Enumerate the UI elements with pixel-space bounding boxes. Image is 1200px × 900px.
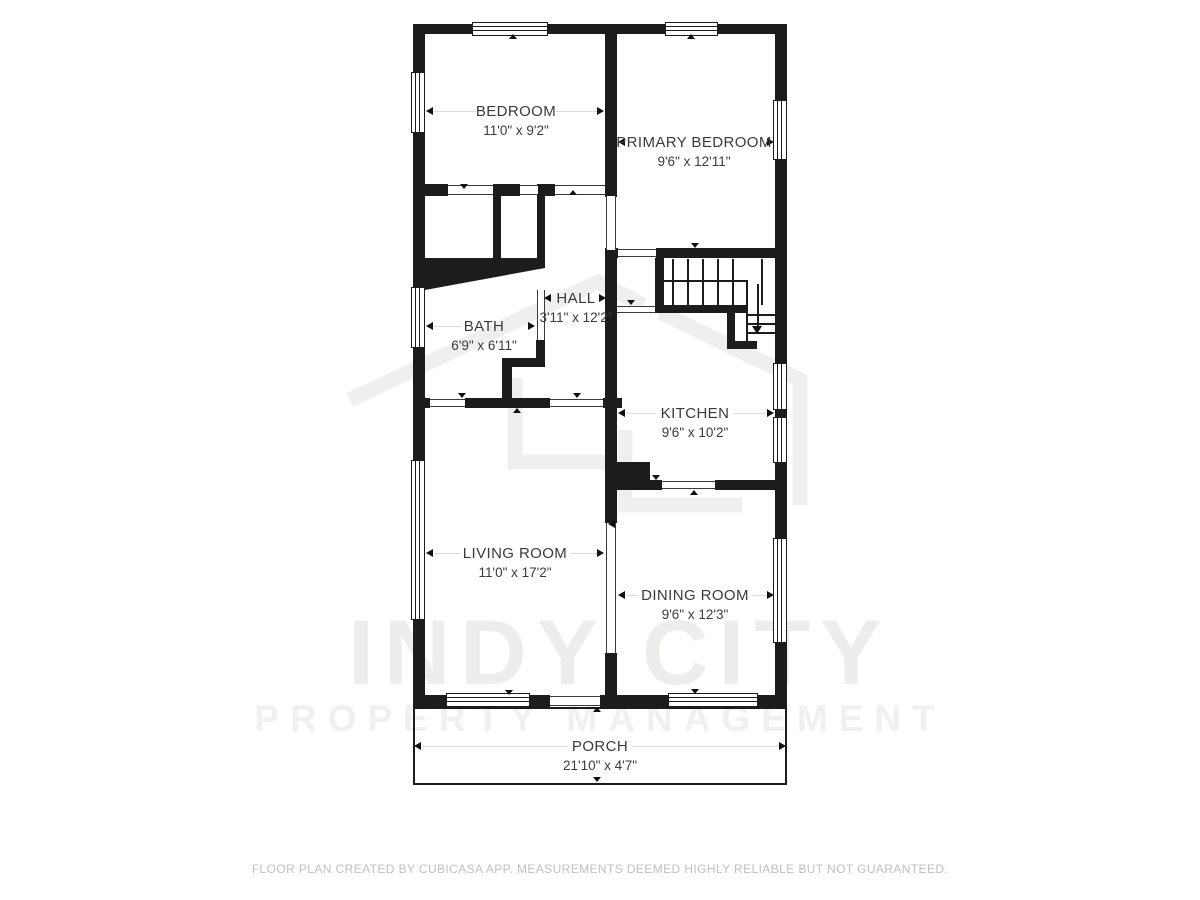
wall-segment	[727, 341, 757, 349]
room-label-primary-bedroom: PRIMARY BEDROOM 9'6" x 12'11"	[616, 134, 771, 169]
room-label-bedroom: BEDROOM 11'0" x 9'2"	[476, 103, 556, 138]
wall-segment	[413, 398, 430, 408]
room-dimensions: 3'11" x 12'2"	[539, 310, 612, 325]
wall-marker	[687, 34, 695, 39]
dimension-leader-line	[570, 553, 597, 554]
wall-segment	[775, 463, 787, 538]
wall-segment	[465, 398, 550, 408]
door-opening	[430, 399, 465, 407]
wall-segment	[775, 24, 787, 100]
room-name: DINING ROOM	[641, 587, 749, 604]
wall-marker	[690, 490, 698, 495]
room-name: KITCHEN	[661, 405, 730, 422]
wall-segment	[648, 480, 662, 490]
wall-segment	[715, 480, 775, 490]
room-name: BEDROOM	[476, 103, 556, 120]
door-opening	[618, 249, 656, 257]
room-dimensions: 9'6" x 12'3"	[641, 607, 749, 622]
wall-marker	[652, 475, 660, 480]
dimension-arrow-left	[618, 409, 625, 417]
room-label-porch: PORCH 21'10" x 4'7"	[563, 738, 637, 773]
room-label-kitchen: KITCHEN 9'6" x 10'2"	[661, 405, 730, 440]
room-name: BATH	[451, 318, 517, 335]
dimension-leader-line	[632, 746, 779, 747]
room-dimensions: 21'10" x 4'7"	[563, 758, 637, 773]
wall-segment	[775, 160, 787, 363]
room-dimensions: 6'9" x 6'11"	[451, 338, 517, 353]
wall-segment	[493, 196, 501, 258]
wall-marker	[505, 690, 513, 695]
door-opening	[550, 696, 600, 706]
dimension-arrow-left	[414, 742, 421, 750]
room-label-living-room: LIVING ROOM 11'0" x 17'2"	[463, 545, 567, 580]
wall-marker	[691, 243, 699, 248]
stair-direction-line	[757, 284, 759, 326]
window	[446, 693, 530, 707]
room-dimensions: 9'6" x 10'2"	[661, 425, 730, 440]
door-opening	[606, 523, 616, 653]
wall-angled-segment	[413, 258, 545, 290]
stair-guide-line	[658, 280, 746, 282]
dimension-leader-line	[434, 111, 476, 112]
stair-down-arrow-icon	[752, 326, 762, 334]
window	[773, 417, 787, 463]
wall-segment	[655, 305, 747, 313]
door-opening	[617, 306, 655, 313]
wall-segment	[548, 24, 665, 34]
wall-segment	[413, 184, 448, 196]
wall-segment	[537, 184, 545, 260]
door-opening	[550, 399, 603, 407]
door-opening	[662, 481, 715, 489]
window	[773, 363, 787, 410]
wall-segment	[605, 653, 617, 695]
stair-tread	[761, 259, 763, 305]
dimension-leader-line	[434, 553, 461, 554]
room-name: HALL	[539, 290, 612, 307]
dimension-leader-line	[734, 413, 767, 414]
wall-marker	[509, 34, 517, 39]
dimension-arrow-left	[618, 591, 625, 599]
dimension-arrow-right	[597, 549, 604, 557]
watermark-brand-name: INDY CITY	[348, 601, 891, 706]
dimension-leader-line	[626, 413, 656, 414]
stair-tread	[717, 259, 719, 305]
window	[773, 538, 787, 643]
room-dimensions: 9'6" x 12'11"	[616, 154, 771, 169]
wall-segment	[413, 620, 425, 707]
room-label-bath: BATH 6'9" x 6'11"	[451, 318, 517, 353]
window	[411, 460, 425, 620]
dimension-arrow-right	[597, 107, 604, 115]
dimension-arrow-left	[426, 107, 433, 115]
wall-segment	[413, 24, 425, 72]
stair-tread	[687, 259, 689, 305]
room-name: PORCH	[563, 738, 637, 755]
footer-disclaimer: FLOOR PLAN CREATED BY CUBICASA APP. MEAS…	[0, 862, 1200, 876]
room-dimensions: 11'0" x 9'2"	[476, 123, 556, 138]
stair-tread	[672, 259, 674, 305]
stair-tread	[746, 323, 775, 325]
wall-marker	[593, 707, 601, 712]
stair-tread	[702, 259, 704, 305]
wall-segment	[502, 358, 543, 367]
room-name: PRIMARY BEDROOM	[616, 134, 771, 151]
door-opening	[520, 185, 538, 195]
dimension-leader-line	[626, 595, 638, 596]
dimension-arrow-right	[779, 742, 786, 750]
floor-plan-canvas: INDY CITY PROPERTY MANAGEMENT	[0, 0, 1200, 900]
wall-segment	[617, 462, 650, 490]
window	[668, 693, 758, 707]
wall-marker	[573, 393, 581, 398]
dimension-arrow-left	[426, 322, 433, 330]
wall-segment	[603, 398, 622, 408]
dimension-arrow-left	[426, 549, 433, 557]
dimension-leader-line	[422, 746, 568, 747]
wall-segment	[758, 695, 787, 707]
wall-segment	[605, 34, 617, 197]
wall-marker	[627, 300, 635, 305]
window	[411, 72, 425, 133]
door-opening	[448, 185, 493, 195]
dimension-arrow-right	[767, 591, 774, 599]
stair-tread	[732, 259, 734, 305]
wall-segment	[656, 248, 775, 258]
door-opening	[555, 185, 605, 195]
dimension-leader-line	[556, 111, 597, 112]
dimension-arrow-right	[528, 322, 535, 330]
room-dimensions: 11'0" x 17'2"	[463, 565, 567, 580]
wall-segment	[493, 184, 520, 196]
door-opening	[606, 196, 616, 250]
wall-marker	[569, 190, 577, 195]
dimension-arrow-right	[767, 409, 774, 417]
wall-marker	[513, 408, 521, 413]
room-label-dining-room: DINING ROOM 9'6" x 12'3"	[641, 587, 749, 622]
wall-segment	[530, 695, 550, 707]
window	[411, 287, 425, 348]
dimension-leader-line	[752, 595, 767, 596]
wall-marker	[608, 520, 615, 528]
wall-marker	[593, 777, 601, 782]
wall-segment	[413, 695, 448, 707]
window	[773, 100, 787, 160]
room-name: LIVING ROOM	[463, 545, 567, 562]
wall-segment	[600, 695, 668, 707]
stair-tread	[746, 314, 775, 316]
wall-marker	[458, 393, 466, 398]
wall-marker	[691, 689, 699, 694]
wall-segment	[775, 410, 787, 417]
room-label-hall: HALL 3'11" x 12'2"	[539, 290, 612, 325]
wall-marker	[460, 184, 468, 189]
